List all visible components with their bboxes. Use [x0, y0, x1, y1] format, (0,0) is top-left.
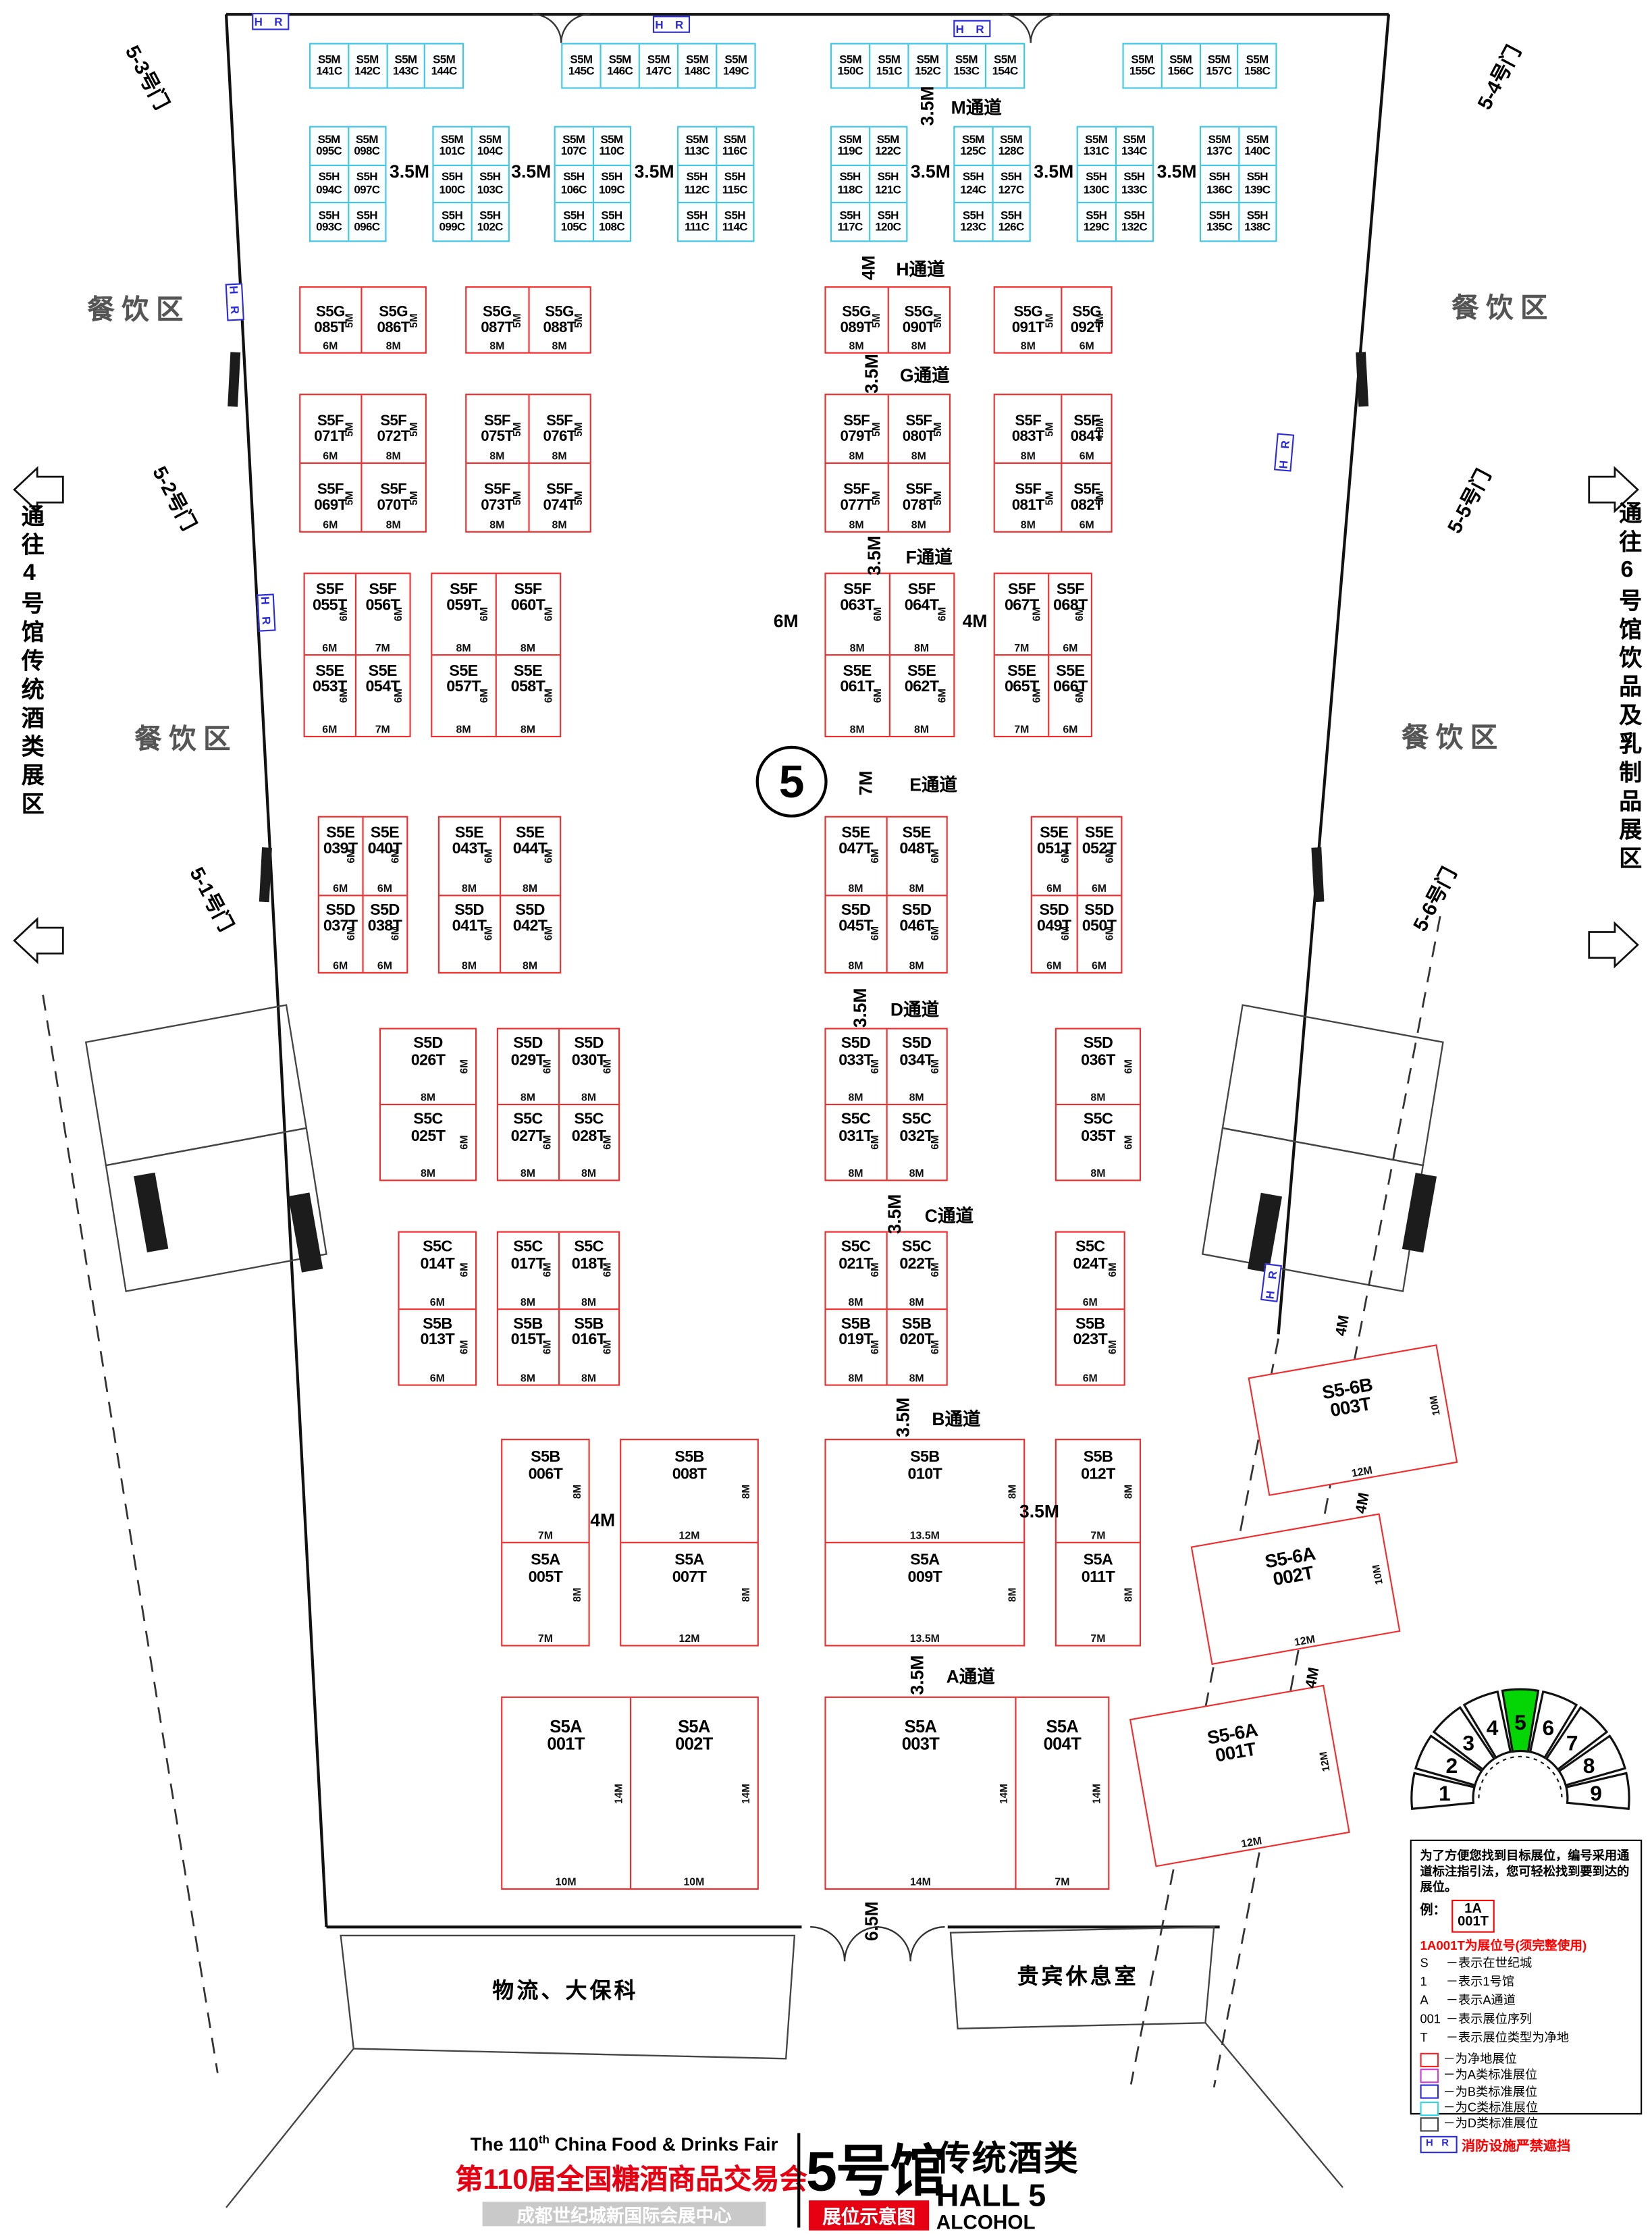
- booth-depth-label: 6M: [601, 1254, 614, 1286]
- booth-prefix: S5E: [907, 662, 936, 679]
- key-label: －为D类标准展位: [1443, 2117, 1538, 2133]
- booth-row: S5M131CS5M134C: [1078, 128, 1152, 166]
- booth-label: S5M134C: [1121, 134, 1147, 157]
- booth-prefix: S5E: [1040, 824, 1068, 841]
- booth-S5E-053T: S5E053T6M6M: [305, 656, 356, 736]
- booth-number: 077T: [840, 498, 872, 513]
- booth-label: S5H135C: [1206, 210, 1232, 234]
- hall-name-en: HALL 5: [936, 2181, 1080, 2212]
- booth-label: S5F073T: [481, 482, 513, 513]
- booth-width-label: 8M: [496, 723, 560, 736]
- booth-row: S5F079T8M5MS5F080T8M5M: [826, 395, 949, 464]
- booth-label: S5A002T: [675, 1698, 712, 1753]
- booth-number: 072T: [377, 429, 410, 444]
- fair-title-chinese: 第110届全国糖酒商品交易会: [455, 2156, 793, 2198]
- booth-number: 024T: [1073, 1256, 1107, 1273]
- booth-prefix: S5F: [380, 412, 406, 429]
- dimension-label: 7M: [856, 770, 876, 795]
- booth-width-label: 8M: [559, 1167, 618, 1179]
- booth-number: 157C: [1206, 66, 1231, 78]
- booth-label: S5F078T: [903, 482, 935, 513]
- booth-prefix: S5B: [574, 1316, 603, 1333]
- booth-S5H-111C: S5H111C: [678, 204, 716, 240]
- booth-prefix: S5D: [902, 1036, 931, 1053]
- booth-label: S5H109C: [599, 172, 624, 196]
- booth-row: S5M125CS5M128C: [955, 128, 1029, 166]
- booth-row: S5H100CS5H103C: [434, 165, 508, 204]
- booth-row: S5E061T8M6MS5E062T8M6M: [826, 656, 954, 736]
- booth-row: S5C021T8M6MS5C022T8M6M: [826, 1233, 947, 1309]
- booth-type-swatch: [1420, 2085, 1439, 2099]
- booth-row: S5D049T6M6MS5D050T6M6M: [1032, 895, 1121, 972]
- booth-number: 085T: [314, 320, 346, 336]
- booth-label: S5M141C: [316, 54, 342, 78]
- booth-S5E-052T: S5E052T6M6M: [1077, 818, 1121, 894]
- booth-prefix: S5E: [455, 824, 483, 841]
- booth-label: S5M142C: [354, 54, 380, 78]
- booth-depth-label: 6M: [344, 840, 356, 872]
- booth-width-label: 6M: [1032, 881, 1076, 894]
- booth-block: S5C017T8M6MS5C018T8M6MS5B015T8M6MS5B016T…: [497, 1231, 620, 1386]
- booth-prefix: S5H: [319, 171, 340, 184]
- booth-depth-label: 5M: [869, 482, 882, 514]
- dimension-label: 3.5M: [907, 1655, 928, 1695]
- booth-number: 090T: [903, 320, 935, 336]
- booth-row: S5F063T8M6MS5F064T8M6M: [826, 574, 954, 656]
- booth-S5D-026T: S5D026T8M6M: [381, 1030, 475, 1104]
- booth-S5F-056T: S5F056T7M6M: [356, 574, 409, 654]
- booth-prefix: S5H: [563, 209, 584, 221]
- booth-row: S5E051T6M6MS5E052T6M6M: [1032, 818, 1121, 896]
- booth-S5M-119C: S5M119C: [832, 128, 870, 164]
- booth-prefix: S5M: [839, 53, 861, 65]
- booth-number: 148C: [685, 66, 710, 78]
- booth-S5H-121C: S5H121C: [870, 165, 906, 202]
- booth-width-label: 8M: [529, 518, 590, 531]
- booth-S5D-050T: S5D050T6M6M: [1077, 895, 1121, 972]
- booth-S5F-077T: S5F077T8M5M: [826, 464, 888, 531]
- booth-block: S5G089T8M5MS5G090T8M5M: [824, 286, 951, 354]
- booth-prefix: S5G: [483, 303, 512, 320]
- booth-number: 025T: [411, 1129, 446, 1146]
- booth-depth-label: 6M: [1058, 840, 1071, 872]
- booth-depth-label: 6M: [336, 680, 349, 712]
- booth-S5C-032T: S5C032T8M6M: [887, 1105, 947, 1179]
- booth-label: S5H132C: [1121, 210, 1147, 234]
- booth-S5E-044T: S5E044T8M6M: [500, 818, 560, 894]
- booth-number: 010T: [908, 1467, 942, 1483]
- booth-S5G-088T: S5G088T8M5M: [529, 288, 590, 352]
- dimension-label: 3.5M: [635, 162, 674, 182]
- booth-depth-label: 6M: [1106, 1254, 1119, 1286]
- booth-label: S5H103C: [477, 172, 503, 196]
- booth-block: S5M107CS5M110CS5H106CS5H109CS5H105CS5H10…: [554, 126, 632, 242]
- booth-number: 110C: [599, 146, 624, 158]
- booth-depth-label: 6M: [1030, 598, 1043, 630]
- booth-label: S5G089T: [840, 304, 872, 336]
- booth-block: S5M137CS5M140CS5H136CS5H139CS5H135CS5H13…: [1200, 126, 1277, 242]
- booth-number: 142C: [354, 66, 380, 78]
- dimension-label: 4M: [1352, 1491, 1373, 1515]
- booth-number: 083T: [1012, 429, 1044, 444]
- hr-icon: H R: [225, 283, 244, 321]
- booth-row: S5B019T8M6MS5B020T8M6M: [826, 1309, 947, 1384]
- minimap-hall-number: 6: [1542, 1716, 1554, 1740]
- booth-prefix: S5F: [369, 581, 396, 597]
- booth-S5A-004T: S5A004T7M14M: [1017, 1698, 1109, 1888]
- booth-S5D-036T: S5D036T8M6M: [1057, 1030, 1140, 1104]
- booth-depth-label: 6M: [928, 1331, 941, 1363]
- booth-block: S5B008T12M8MS5A007T12M8M: [620, 1439, 759, 1646]
- booth-width-label: 7M: [995, 641, 1048, 654]
- booth-number: 112C: [685, 184, 710, 196]
- booth-number: 144C: [431, 66, 457, 78]
- booth-width-label: 6M: [1063, 340, 1111, 352]
- booth-number: 058T: [511, 681, 545, 697]
- booth-prefix: S5M: [570, 53, 592, 65]
- booth-number: 107C: [561, 146, 587, 158]
- booth-block: S5F063T8M6MS5F064T8M6MS5E061T8M6MS5E062T…: [824, 573, 955, 737]
- booth-block: S5B006T7M8MS5A005T7M8M: [501, 1439, 589, 1646]
- booth-depth-label: 6M: [457, 1254, 470, 1286]
- booth-number: 006T: [529, 1467, 563, 1483]
- booth-row: S5C025T8M6M: [381, 1105, 475, 1179]
- booth-prefix: S5H: [878, 209, 899, 221]
- booth-S5C-022T: S5C022T8M6M: [887, 1233, 947, 1308]
- booth-row: S5M141CS5M142CS5M143CS5M144C: [311, 45, 462, 88]
- booth-S5B-013T: S5B013T6M6M: [400, 1309, 475, 1384]
- booth-number: 007T: [672, 1570, 707, 1587]
- booth-prefix: S5H: [356, 209, 377, 221]
- booth-label: S5F081T: [1012, 482, 1044, 513]
- booth-prefix: S5M: [433, 53, 455, 65]
- booth-width-label: 8M: [887, 1167, 947, 1179]
- booth-prefix: S5C: [513, 1239, 542, 1256]
- booth-prefix: S5E: [1007, 662, 1036, 679]
- booth-S5H-100C: S5H100C: [434, 165, 472, 202]
- booth-label: S5H111C: [685, 210, 709, 234]
- booth-row: S5F075T8M5MS5F076T8M5M: [467, 395, 589, 464]
- booth-row: S5H094CS5H097C: [311, 165, 385, 204]
- booth-row: S5H099CS5H102C: [434, 204, 508, 240]
- booth-label: S5A003T: [902, 1698, 939, 1753]
- map-type-badge: 展位示意图: [809, 2200, 929, 2231]
- booth-prefix: S5M: [686, 132, 708, 145]
- booth-row: S5C014T6M6M: [400, 1233, 475, 1309]
- booth-S5C-024T: S5C024T6M6M: [1057, 1233, 1124, 1308]
- booth-label: S5H138C: [1244, 210, 1270, 234]
- booth-number: 059T: [446, 599, 481, 615]
- booth-number: 001T: [547, 1735, 584, 1753]
- booth-S5E-048T: S5E048T8M6M: [887, 818, 947, 894]
- booth-S5B-015T: S5B015T8M6M: [498, 1309, 559, 1384]
- booth-number: 095C: [316, 146, 342, 158]
- booth-prefix: S5G: [545, 303, 574, 320]
- booth-S5B-010T: S5B010T13.5M8M: [826, 1440, 1024, 1542]
- booth-depth-label: 8M: [1006, 1475, 1019, 1507]
- booth-number: 081T: [1012, 498, 1044, 513]
- booth-row: S5A001T10M14MS5A002T10M14M: [502, 1698, 757, 1888]
- booth-S5M-098C: S5M098C: [348, 128, 385, 164]
- booth-width-label: 8M: [559, 1295, 618, 1308]
- booth-row: S5D041T8M6MS5D042T8M6M: [439, 895, 560, 972]
- booth-number: 131C: [1084, 146, 1109, 158]
- booth-block: S5M119CS5M122CS5H118CS5H121CS5H117CS5H12…: [830, 126, 908, 242]
- booth-block: S5D036T8M6MS5C035T8M6M: [1055, 1028, 1141, 1181]
- booth-prefix: S5D: [1084, 902, 1113, 919]
- booth-row: S5H106CS5H109C: [556, 165, 630, 204]
- booth-S5E-040T: S5E040T6M6M: [363, 818, 407, 894]
- booth-label: S5F079T: [840, 413, 872, 444]
- booth-prefix: S5M: [724, 53, 747, 65]
- booth-depth-label: 8M: [570, 1475, 583, 1507]
- booth-row: S5E053T6M6MS5E054T7M6M: [305, 656, 410, 736]
- booth-depth-label: 6M: [868, 1254, 880, 1286]
- booth-prefix: S5M: [356, 132, 378, 145]
- booth-prefix: S5H: [1123, 209, 1144, 221]
- booth-prefix: S5F: [1015, 412, 1041, 429]
- booth-row: S5M119CS5M122C: [832, 128, 906, 166]
- booth-prefix: S5M: [441, 132, 463, 145]
- booth-depth-label: 6M: [457, 1050, 470, 1082]
- booth-number: 154C: [992, 66, 1018, 78]
- booth-prefix: S5A: [1046, 1716, 1079, 1736]
- booth-prefix: S5H: [1209, 209, 1230, 221]
- booth-depth-label: 6M: [601, 1127, 614, 1159]
- minimap-hall-number: 1: [1439, 1781, 1451, 1805]
- booth-prefix: S5H: [878, 171, 899, 184]
- booth-label: S5E058T: [511, 656, 545, 697]
- booth-prefix: S5M: [1246, 53, 1269, 65]
- booth-number: 139C: [1244, 184, 1270, 196]
- booth-width-label: 8M: [890, 641, 953, 654]
- minimap-hall-number: 5: [1514, 1710, 1526, 1734]
- booth-prefix: S5M: [878, 53, 900, 65]
- booth-number: 149C: [723, 66, 749, 78]
- booth-width-label: 6M: [363, 881, 407, 894]
- booth-prefix: S5C: [902, 1111, 931, 1128]
- booth-label: S5H126C: [998, 210, 1024, 234]
- booth-prefix: S5H: [687, 171, 708, 184]
- booth-prefix: S5C: [574, 1239, 603, 1256]
- booth-depth-label: 5M: [407, 304, 420, 336]
- booth-row: S5F071T6M5MS5F072T8M5M: [300, 395, 425, 464]
- booth-depth-label: 6M: [601, 1331, 614, 1363]
- definition-text: －表示展位类型为净地: [1446, 2030, 1569, 2044]
- booth-S5M-142C: S5M142C: [349, 45, 388, 88]
- booth-number: 087T: [481, 320, 513, 336]
- booth-width-label: 6M: [400, 1371, 475, 1384]
- booth-width-label: 8M: [362, 340, 425, 352]
- booth-label: S5D026T: [411, 1030, 446, 1070]
- hr-icon: H R: [653, 16, 690, 32]
- booth-depth-label: 6M: [928, 840, 941, 872]
- booth-row: S5F059T8M6MS5F060T8M6M: [432, 574, 560, 656]
- booth-prefix: S5B: [1075, 1316, 1104, 1333]
- booth-depth-label: 5M: [869, 304, 882, 336]
- booth-number: 136C: [1206, 184, 1232, 196]
- booth-prefix: S5F: [843, 481, 870, 498]
- booth-label: S5M107C: [561, 134, 587, 157]
- booth-prefix: S5D: [413, 1036, 442, 1053]
- booth-number: 091T: [1012, 320, 1044, 336]
- booth-row: S5M107CS5M110C: [556, 128, 630, 166]
- booth-prefix: S5C: [1075, 1239, 1104, 1256]
- booth-row: S5H124CS5H127C: [955, 165, 1029, 204]
- booth-prefix: S5B: [513, 1316, 542, 1333]
- booth-depth-label: 6M: [457, 1127, 470, 1159]
- booth-row: S5H111CS5H114C: [678, 204, 753, 240]
- booth-S5H-123C: S5H123C: [955, 204, 992, 240]
- booth-S5H-106C: S5H106C: [556, 165, 593, 202]
- booth-depth-label: 6M: [344, 918, 356, 950]
- booth-depth-label: 6M: [868, 918, 880, 950]
- booth-depth-label: 6M: [1103, 918, 1116, 950]
- booth-width-label: 6M: [300, 450, 360, 462]
- booth-width-label: 8M: [467, 340, 527, 352]
- booth-block: S5B012T7M8MS5A011T7M8M: [1055, 1439, 1141, 1646]
- booth-prefix: S5H: [724, 171, 745, 184]
- booth-width-label: 8M: [498, 1371, 558, 1384]
- dining-area-label: 餐饮区: [87, 288, 190, 327]
- booth-prefix: S5D: [513, 1036, 542, 1053]
- booth-prefix: S5H: [479, 171, 500, 184]
- booth-label: S5F083T: [1012, 413, 1044, 444]
- booth-width-label: 8M: [467, 518, 527, 531]
- booth-depth-label: 6M: [936, 598, 949, 630]
- aisle-label: E通道: [909, 770, 957, 797]
- booth-prefix: S5D: [325, 902, 354, 919]
- hr-icon: H R: [953, 20, 990, 37]
- booth-row: S5-6A001T12M12M: [1131, 1686, 1348, 1865]
- booth-depth-label: 6M: [868, 1127, 880, 1159]
- booth-width-label: 14M: [826, 1876, 1015, 1888]
- booth-label: S5C025T: [411, 1105, 446, 1146]
- booth-row: S5M150CS5M151CS5M152CS5M153CS5M154C: [832, 45, 1023, 88]
- booth-number: 143C: [393, 66, 419, 78]
- booth-number: 075T: [481, 429, 513, 444]
- booth-depth-label: 6M: [868, 1331, 880, 1363]
- booth-row: S5F077T8M5MS5F078T8M5M: [826, 464, 949, 531]
- booth-width-label: 12M: [621, 1529, 757, 1542]
- booth-S5G-085T: S5G085T6M5M: [300, 288, 361, 352]
- booth-depth-label: 6M: [392, 598, 404, 630]
- booth-block: S5F083T8M5MS5F084T6M4.9MS5F081T8M5MS5F08…: [994, 394, 1113, 533]
- legend-color-key: －为净地展位－为A类标准展位－为B类标准展位－为C类标准展位－为D类标准展位: [1420, 2051, 1632, 2132]
- booth-number: 111C: [685, 222, 709, 234]
- booth-label: S5H118C: [837, 172, 862, 196]
- booth-width-label: 8M: [826, 1371, 886, 1384]
- booth-row: S5B015T8M6MS5B016T8M6M: [498, 1309, 618, 1384]
- booth-block: S5F055T6M6MS5F056T7M6MS5E053T6M6MS5E054T…: [304, 573, 411, 737]
- booth-S5M-154C: S5M154C: [986, 45, 1023, 88]
- booth-label: S5H129C: [1084, 210, 1109, 234]
- hr-icon: H R: [252, 13, 289, 30]
- booth-S5D-045T: S5D045T8M6M: [826, 895, 887, 972]
- booth-label: S5F075T: [481, 413, 513, 444]
- booth-depth-label: 10M: [1368, 1558, 1387, 1591]
- booth-width-label: 8M: [826, 1167, 886, 1179]
- booth-depth-label: 6M: [481, 918, 494, 950]
- booth-S5M-150C: S5M150C: [832, 45, 870, 88]
- sample-line1: 1A: [1453, 1902, 1493, 1916]
- booth-S5D-034T: S5D034T8M6M: [887, 1030, 947, 1104]
- booth-width-label: 6M: [1050, 723, 1091, 736]
- booth-block: S5F079T8M5MS5F080T8M5MS5F077T8M5MS5F078T…: [824, 394, 951, 533]
- booth-row: S5D029T8M6MS5D030T8M6M: [498, 1030, 618, 1105]
- booth-row: S5F081T8M5MS5F082T6M5M: [995, 464, 1111, 531]
- booth-label: S5M113C: [685, 134, 710, 157]
- booth-depth-label: 6M: [539, 1331, 552, 1363]
- booth-row: S5D026T8M6M: [381, 1030, 475, 1105]
- booth-width-label: 8M: [498, 1167, 558, 1179]
- booth-depth-label: 6M: [392, 680, 404, 712]
- dimension-label: 3.5M: [884, 1194, 905, 1234]
- booth-prefix: S5M: [1000, 132, 1022, 145]
- booth-prefix: S5D: [1084, 1036, 1113, 1053]
- booth-prefix: S5E: [1085, 824, 1113, 841]
- booth-prefix: S5E: [315, 662, 344, 679]
- booth-prefix: S5H: [839, 171, 860, 184]
- title-divider: [797, 2133, 800, 2228]
- booth-row: S5G089T8M5MS5G090T8M5M: [826, 288, 949, 352]
- booth-block: S5F075T8M5MS5F076T8M5MS5F073T8M5MS5F074T…: [465, 394, 591, 533]
- booth-S5E-054T: S5E054T7M6M: [356, 656, 409, 736]
- booth-label: S5D036T: [1081, 1030, 1115, 1070]
- dimension-label: 3.5M: [917, 86, 938, 126]
- booth-number: 099C: [439, 222, 465, 234]
- booth-width-label: 8M: [498, 1295, 558, 1308]
- booth-number: 146C: [607, 66, 633, 78]
- booth-prefix: S5E: [371, 824, 399, 841]
- room-label: 物流、大保科: [492, 1975, 638, 2005]
- booth-number: 116C: [722, 146, 747, 158]
- legend-sample-note: 1A001T为展位号(须完整使用): [1420, 1936, 1632, 1955]
- booth-prefix: S5A: [678, 1716, 710, 1736]
- booth-depth-label: 6M: [936, 680, 949, 712]
- booth-S5E-057T: S5E057T8M6M: [432, 656, 496, 736]
- booth-depth-label: 6M: [389, 918, 402, 950]
- booth-label: S5F064T: [905, 574, 939, 615]
- booth-depth-label: 6M: [868, 1050, 880, 1082]
- booth-type-swatch: [1420, 2117, 1439, 2131]
- booth-label: S5H124C: [960, 172, 986, 196]
- booth-S5M-158C: S5M158C: [1239, 45, 1276, 88]
- booth-S5C-014T: S5C014T6M6M: [400, 1233, 475, 1308]
- booth-width-label: 6M: [1032, 959, 1076, 972]
- booth-number: 009T: [908, 1570, 942, 1587]
- booth-S5G-089T: S5G089T8M5M: [826, 288, 888, 352]
- booth-block: S5C014T6M6MS5B013T6M6M: [398, 1231, 477, 1386]
- booth-width-label: 8M: [559, 1371, 618, 1384]
- booth-S5H-130C: S5H130C: [1078, 165, 1116, 202]
- booth-depth-label: 6M: [477, 598, 489, 630]
- booth-number: 100C: [439, 184, 465, 196]
- booth-prefix: S5H: [1001, 171, 1021, 184]
- booth-label: S5F077T: [840, 482, 872, 513]
- booth-depth-label: 5M: [1043, 413, 1056, 445]
- booth-prefix: S5A: [910, 1552, 939, 1569]
- booth-S5M-113C: S5M113C: [678, 128, 716, 164]
- booth-number: 096C: [354, 222, 379, 234]
- booth-number: 003T: [902, 1735, 939, 1753]
- booth-number: 108C: [599, 222, 624, 234]
- booth-S5M-155C: S5M155C: [1124, 45, 1163, 88]
- booth-S5C-025T: S5C025T8M6M: [381, 1105, 475, 1179]
- booth-number: 140C: [1244, 146, 1270, 158]
- booth-prefix: S5M: [394, 53, 417, 65]
- booth-label: S5M110C: [599, 134, 624, 157]
